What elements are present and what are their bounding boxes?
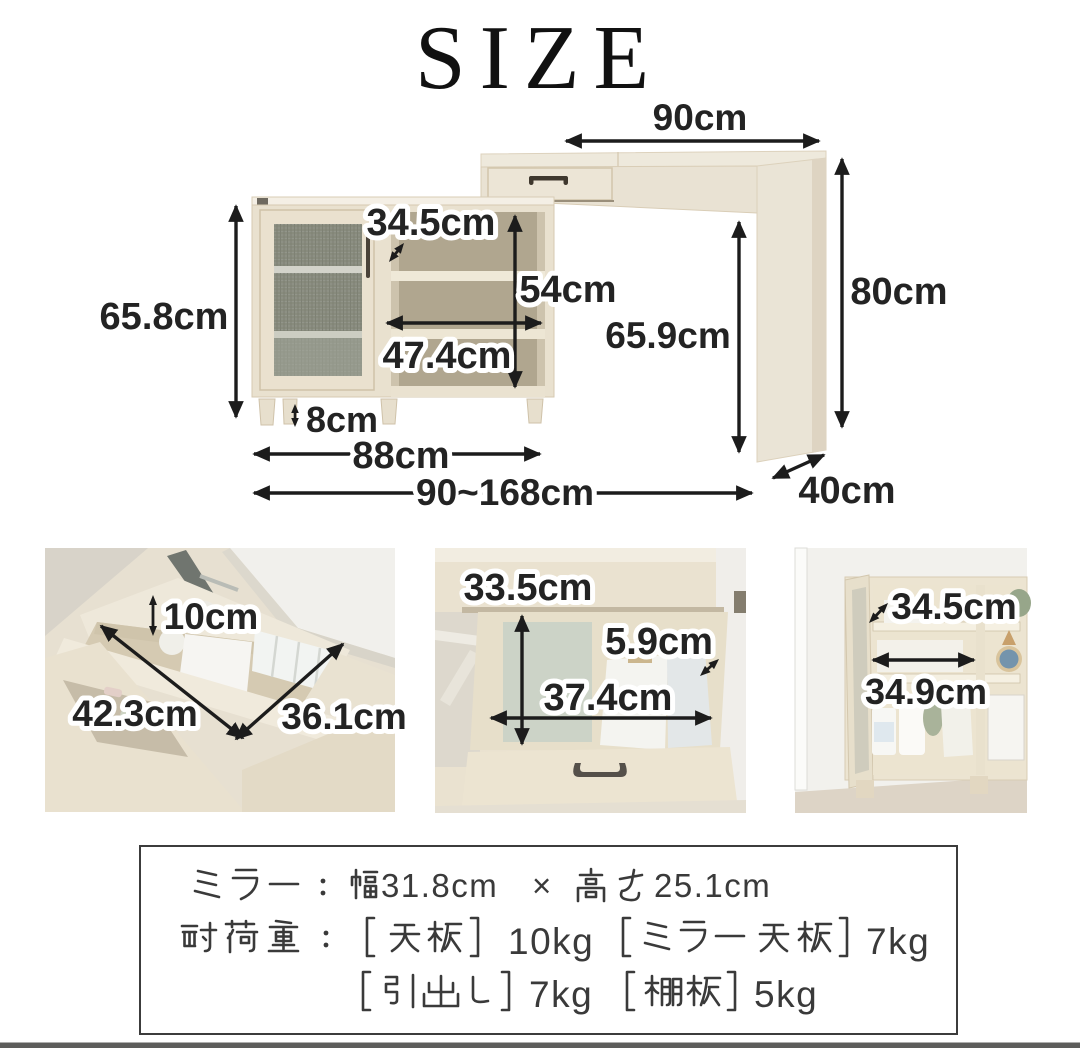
svg-text:×: × [532, 867, 553, 904]
svg-text:40cm: 40cm [798, 470, 895, 512]
svg-text:47.4cm: 47.4cm [383, 335, 512, 377]
svg-text:37.4cm: 37.4cm [544, 677, 673, 719]
svg-text:25.1cm: 25.1cm [654, 867, 771, 904]
svg-text:5.9cm: 5.9cm [605, 621, 713, 663]
svg-text:54cm: 54cm [519, 269, 616, 311]
svg-text:SIZE: SIZE [415, 7, 663, 108]
svg-text:33.5cm: 33.5cm [464, 567, 593, 609]
svg-text:65.9cm: 65.9cm [605, 315, 731, 356]
svg-text:7kg: 7kg [866, 921, 930, 962]
svg-text:10kg: 10kg [508, 921, 594, 962]
svg-text:90~168cm: 90~168cm [416, 472, 594, 513]
svg-text:80cm: 80cm [850, 271, 947, 313]
svg-text:31.8cm: 31.8cm [381, 867, 498, 904]
svg-text:34.5cm: 34.5cm [891, 586, 1017, 627]
svg-text:65.8cm: 65.8cm [100, 296, 229, 338]
svg-text:42.3cm: 42.3cm [72, 693, 198, 734]
svg-text:90cm: 90cm [653, 97, 748, 138]
svg-text:10cm: 10cm [164, 596, 259, 637]
svg-text:36.1cm: 36.1cm [281, 696, 407, 737]
svg-text:7kg: 7kg [529, 974, 593, 1015]
svg-text:34.9cm: 34.9cm [865, 671, 987, 712]
svg-text:34.5cm: 34.5cm [367, 202, 496, 244]
svg-text:88cm: 88cm [352, 435, 449, 477]
svg-text:5kg: 5kg [754, 974, 818, 1015]
svg-text:8cm: 8cm [306, 399, 378, 440]
